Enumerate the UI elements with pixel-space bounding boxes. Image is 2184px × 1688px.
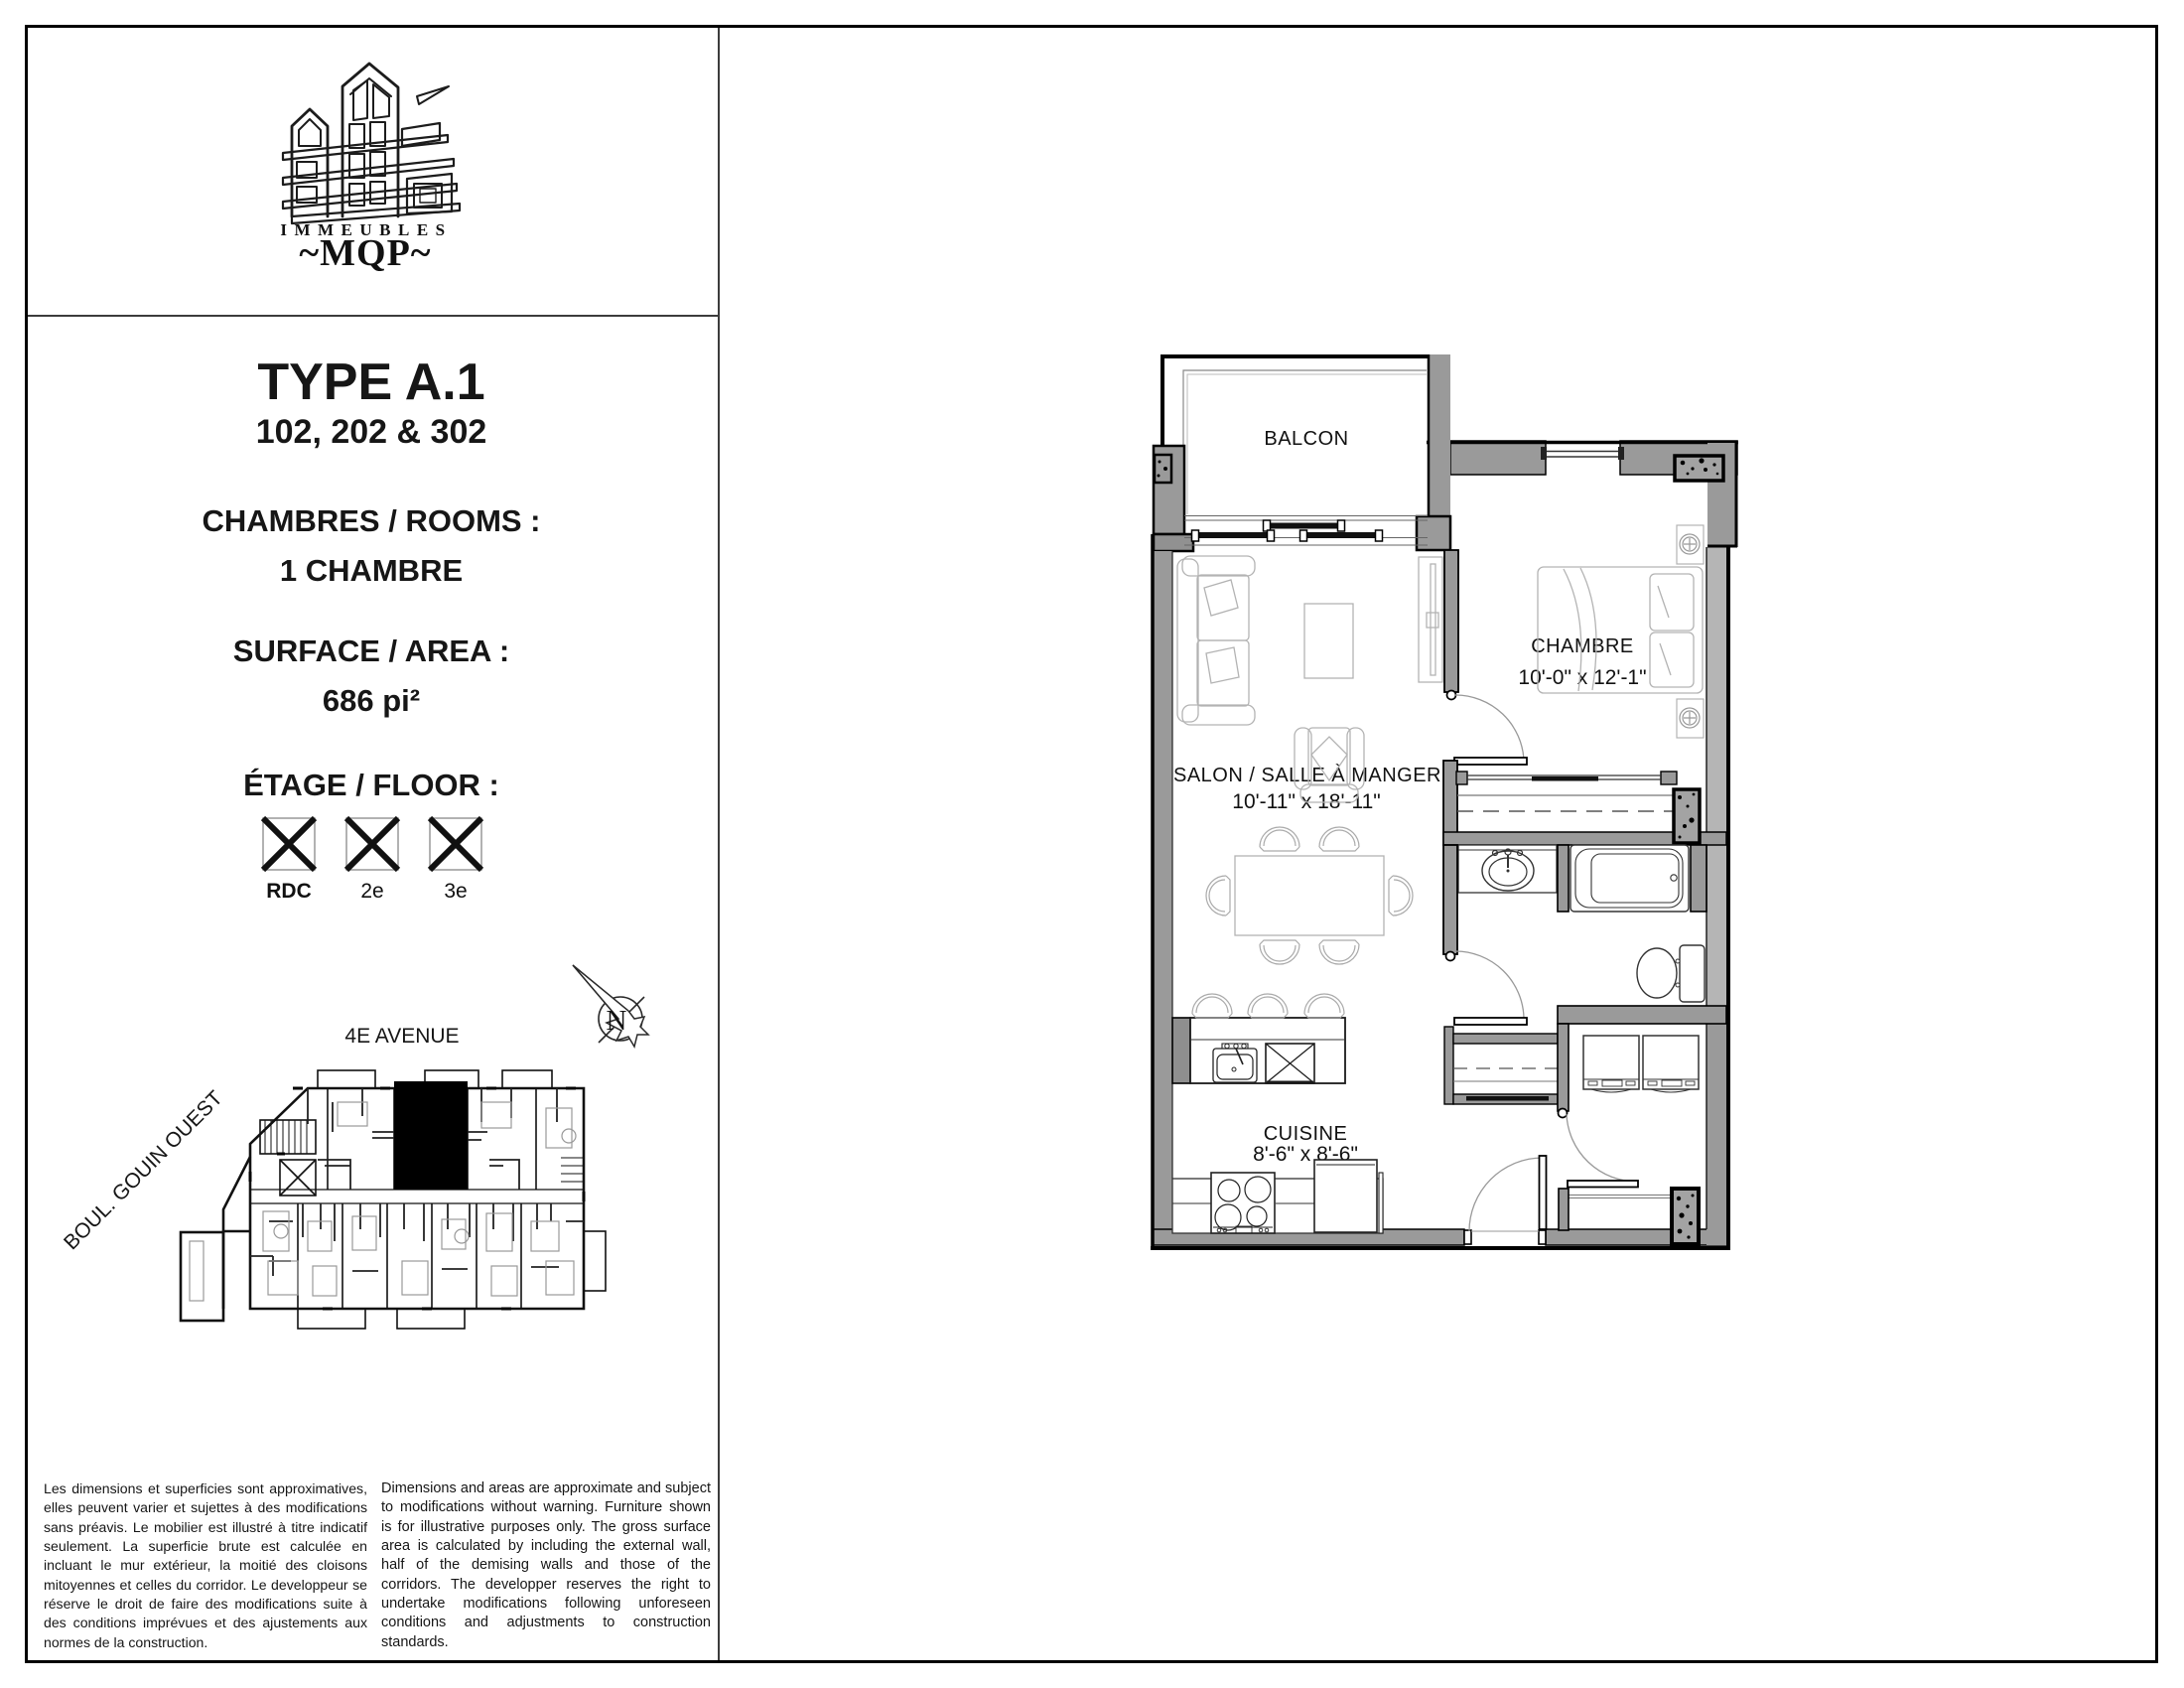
svg-text:~MQP~: ~MQP~ [299, 232, 431, 274]
svg-text:CHAMBRE: CHAMBRE [1531, 635, 1634, 657]
svg-text:2e: 2e [360, 880, 383, 903]
svg-text:3e: 3e [444, 880, 467, 903]
svg-text:SALON / SALLE À MANGER: SALON / SALLE À MANGER [1173, 764, 1441, 786]
svg-text:CUISINE: CUISINE [1264, 1123, 1348, 1145]
svg-text:BALCON: BALCON [1264, 428, 1348, 450]
svg-text:RDC: RDC [266, 880, 312, 903]
svg-text:N: N [607, 1005, 627, 1037]
